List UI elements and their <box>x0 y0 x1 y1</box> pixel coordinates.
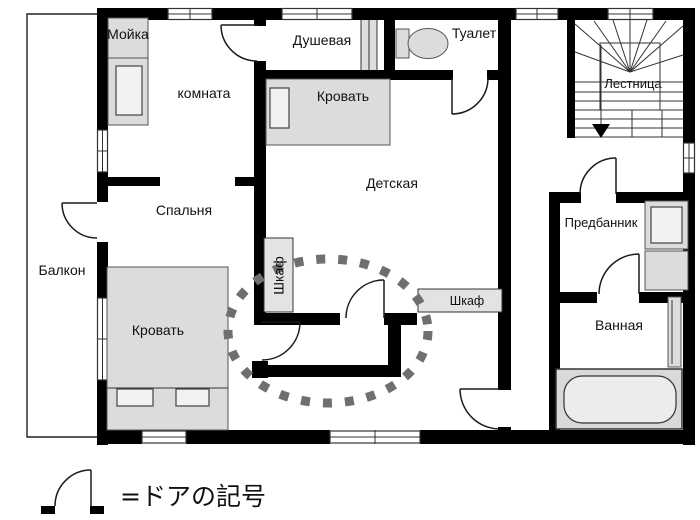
window-top-3 <box>516 8 558 20</box>
label-tualet: Туалет <box>452 25 497 41</box>
door-corridor-detskaya <box>346 280 384 318</box>
floor-plan: Мойка комната Душевая Туалет Лестница Кр… <box>0 0 700 520</box>
label-vannaya: Ванная <box>595 317 643 333</box>
towel-rail <box>668 297 681 367</box>
label-krovat-spalnya: Кровать <box>132 322 184 338</box>
shower-partition <box>361 20 377 70</box>
window-bottom-1 <box>142 431 186 443</box>
legend-door-symbol <box>41 470 104 514</box>
washing-machine <box>108 58 148 125</box>
label-predbannik: Предбанник <box>565 215 638 230</box>
window-top-1 <box>168 8 212 20</box>
label-komnata: комната <box>178 85 231 101</box>
label-mojka: Мойка <box>107 26 149 42</box>
label-dushevaya: Душевая <box>293 32 351 48</box>
label-lestnitsa: Лестница <box>604 76 662 91</box>
toilet-fixture <box>396 29 448 59</box>
predbannik-sink <box>645 201 688 249</box>
label-shkaf-horizontal: Шкаф <box>450 294 484 308</box>
door-tualet-detskaya <box>452 78 488 114</box>
window-bottom-2 <box>330 430 420 444</box>
predbannik-cabinet <box>645 251 688 290</box>
door-predbannik-vannaya <box>599 254 639 294</box>
label-balkon: Балкон <box>39 262 86 278</box>
bathtub <box>556 369 682 429</box>
label-shkaf-vertical: Шкаф <box>271 256 287 295</box>
window-top-2 <box>282 8 352 20</box>
bed-spalnya <box>107 267 228 430</box>
window-left-1 <box>97 130 108 172</box>
label-spalnya: Спальня <box>156 202 212 218</box>
door-spalnya-corridor <box>262 322 300 360</box>
door-detskaya-hall <box>460 389 500 429</box>
door-komnata-dushevaya <box>221 25 257 61</box>
legend: =ドアの記号 <box>41 470 266 514</box>
door-balcony <box>62 203 97 238</box>
window-right <box>683 143 695 173</box>
door-predbannik <box>580 158 616 194</box>
legend-text: =ドアの記号 <box>120 482 266 511</box>
balcony-outline <box>27 14 97 437</box>
window-left-2 <box>97 298 108 380</box>
floor-plan-page: Мойка комната Душевая Туалет Лестница Кр… <box>0 0 700 520</box>
label-krovat-detskaya: Кровать <box>317 88 369 104</box>
label-detskaya: Детская <box>366 175 418 191</box>
